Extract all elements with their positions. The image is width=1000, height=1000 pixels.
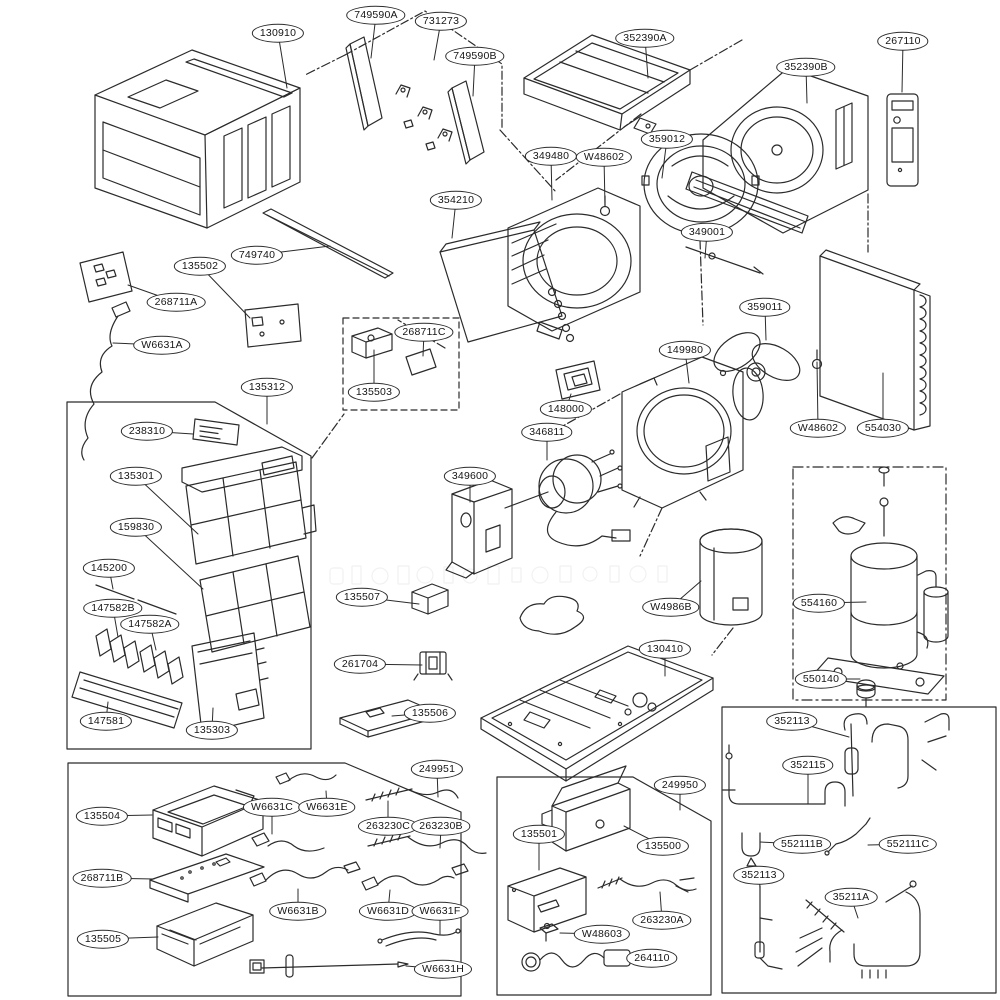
part-label-135312: 135312 (241, 378, 293, 397)
part-label-349001: 349001 (681, 223, 733, 242)
part-label-147582A: 147582A (120, 615, 179, 634)
part-label-W48602: W48602 (790, 419, 846, 438)
part-label-135500: 135500 (637, 837, 689, 856)
part-label-147581: 147581 (80, 712, 132, 731)
part-label-352113: 352113 (766, 712, 817, 731)
part-label-267110: 267110 (877, 32, 928, 51)
part-label-135506: 135506 (404, 704, 456, 723)
part-label-W48602: W48602 (576, 148, 632, 167)
part-label-268711C: 268711C (394, 323, 453, 342)
part-label-135301: 135301 (110, 467, 162, 486)
part-label-135507: 135507 (336, 588, 388, 607)
part-label-159830: 159830 (110, 518, 162, 537)
part-label-264110: 264110 (626, 949, 677, 968)
part-label-352390B: 352390B (776, 58, 835, 77)
part-label-238310: 238310 (121, 422, 173, 441)
part-label-554030: 554030 (857, 419, 909, 438)
part-label-552111B: 552111B (773, 835, 831, 854)
parts-diagram-page: 130910749590A731273749590B352390A352390B… (0, 0, 1000, 1000)
part-label-135505: 135505 (77, 930, 129, 949)
part-label-149980: 149980 (659, 341, 711, 360)
part-label-261704: 261704 (334, 655, 386, 674)
part-label-554160: 554160 (793, 594, 845, 613)
part-label-135504: 135504 (76, 807, 128, 826)
part-label-352113: 352113 (733, 866, 784, 885)
part-label-352115: 352115 (782, 756, 833, 775)
part-label-263230C: 263230C (358, 817, 418, 836)
part-label-W48603: W48603 (574, 925, 630, 944)
part-labels: 130910749590A731273749590B352390A352390B… (0, 0, 1000, 1000)
part-label-263230B: 263230B (411, 817, 470, 836)
part-label-147582B: 147582B (83, 599, 142, 618)
part-label-W6631F: W6631F (412, 902, 469, 921)
part-label-135502: 135502 (174, 257, 226, 276)
part-label-552111C: 552111C (879, 835, 937, 854)
part-label-359012: 359012 (641, 130, 693, 149)
part-label-135501: 135501 (513, 825, 565, 844)
part-label-550140: 550140 (795, 670, 847, 689)
part-label-W4986B: W4986B (642, 598, 699, 617)
part-label-135503: 135503 (348, 383, 400, 402)
part-label-130410: 130410 (639, 640, 691, 659)
part-label-749590A: 749590A (346, 6, 405, 25)
part-label-249950: 249950 (654, 776, 706, 795)
part-label-359011: 359011 (739, 298, 790, 317)
part-label-W6631B: W6631B (269, 902, 326, 921)
part-label-731273: 731273 (415, 12, 467, 31)
part-label-145200: 145200 (83, 559, 135, 578)
part-label-W6631H: W6631H (414, 960, 472, 979)
part-label-354210: 354210 (430, 191, 482, 210)
part-label-W6631D: W6631D (359, 902, 417, 921)
part-label-35211A: 35211A (825, 888, 878, 907)
part-label-148000: 148000 (540, 400, 592, 419)
part-label-268711A: 268711A (147, 293, 206, 312)
part-label-W6631A: W6631A (133, 336, 190, 355)
part-label-135303: 135303 (186, 721, 238, 740)
part-label-249951: 249951 (411, 760, 463, 779)
part-label-346811: 346811 (521, 423, 572, 442)
part-label-352390A: 352390A (615, 29, 674, 48)
part-label-268711B: 268711B (73, 869, 132, 888)
part-label-749590B: 749590B (445, 47, 504, 66)
part-label-349480: 349480 (525, 147, 577, 166)
part-label-W6631C: W6631C (243, 798, 301, 817)
part-label-W6631E: W6631E (298, 798, 355, 817)
part-label-349600: 349600 (444, 467, 496, 486)
part-label-130910: 130910 (252, 24, 304, 43)
part-label-263230A: 263230A (632, 911, 691, 930)
part-label-749740: 749740 (231, 246, 283, 265)
